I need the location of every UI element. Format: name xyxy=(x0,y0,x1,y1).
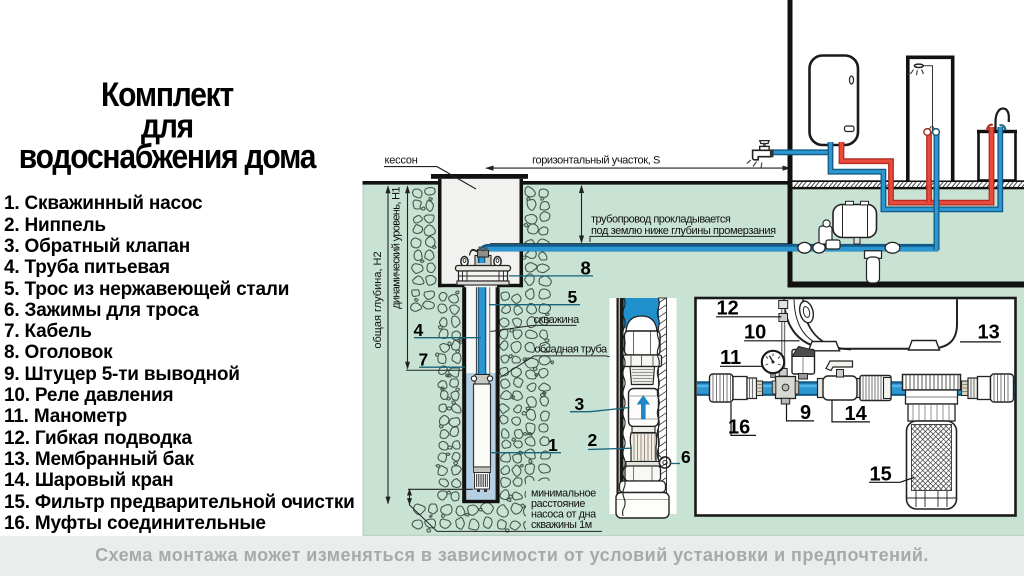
svg-text:8: 8 xyxy=(581,258,591,279)
svg-text:7: 7 xyxy=(419,349,429,369)
svg-text:1: 1 xyxy=(548,435,558,455)
svg-text:9: 9 xyxy=(800,402,811,424)
svg-text:обсадная труба: обсадная труба xyxy=(535,343,608,355)
svg-text:скважина: скважина xyxy=(534,314,581,326)
svg-text:динамический уровень, Н1: динамический уровень, Н1 xyxy=(391,187,403,309)
svg-text:5: 5 xyxy=(568,287,578,307)
svg-text:13: 13 xyxy=(978,322,1000,344)
svg-text:3: 3 xyxy=(575,394,585,414)
svg-text:трубопровод прокладывается: трубопровод прокладывается xyxy=(591,214,731,226)
svg-text:6: 6 xyxy=(681,447,691,467)
svg-text:16: 16 xyxy=(728,417,750,439)
svg-text:14: 14 xyxy=(845,403,868,425)
svg-text:общая глубина, Н2: общая глубина, Н2 xyxy=(372,251,384,348)
svg-text:горизонтальный участок, S: горизонтальный участок, S xyxy=(532,155,660,167)
svg-text:кессон: кессон xyxy=(385,155,418,167)
svg-text:4: 4 xyxy=(414,320,424,340)
svg-text:15: 15 xyxy=(870,463,892,485)
svg-text:под землю ниже глубины про: под землю ниже глубины промерзания xyxy=(591,225,776,237)
svg-text:скважины 1м: скважины 1м xyxy=(531,519,592,531)
svg-text:2: 2 xyxy=(588,430,598,450)
